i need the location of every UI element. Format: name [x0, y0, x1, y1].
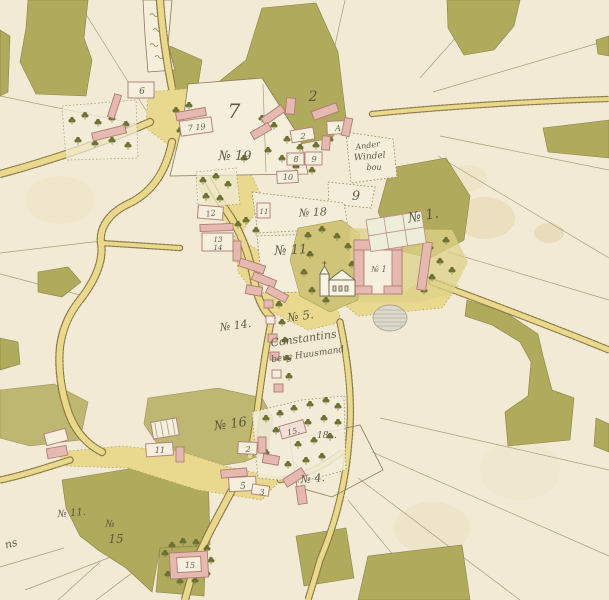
cottage	[272, 370, 281, 378]
wood-small-midleft	[38, 267, 81, 297]
label-plot-9: 9	[352, 189, 360, 204]
wood-right-z	[465, 300, 574, 446]
wood-right-mid	[543, 120, 609, 158]
label-building-6: 6	[139, 87, 145, 97]
label-building-a: A	[334, 124, 341, 133]
wood-left-lower	[0, 384, 88, 446]
tree-icon	[313, 142, 320, 150]
farm-building	[176, 447, 184, 462]
cottage	[274, 384, 283, 392]
wood-bottom-1	[358, 545, 470, 600]
tree-icon	[309, 167, 316, 175]
wood-left-sliver	[0, 30, 10, 96]
label-building-12: 12	[205, 208, 216, 218]
label-plot-15-no: №	[104, 519, 114, 530]
label-building-2-lower: 2	[244, 445, 250, 454]
farm-building	[200, 223, 233, 231]
label-plot-2: 2	[308, 89, 318, 105]
label-plot-18: № 18	[298, 205, 328, 219]
label-building-3-lower: 3	[259, 488, 264, 497]
label-script-ns: ns	[3, 536, 19, 552]
parcel-garden-12	[196, 168, 240, 208]
label-building-9: 9	[311, 155, 316, 164]
wood-topright-edge	[596, 36, 609, 56]
label-building-10: 10	[283, 173, 293, 182]
label-plot-18-dots: 18...	[317, 431, 337, 441]
cottage	[264, 300, 273, 308]
farm-building	[296, 485, 307, 504]
parcel-garden-west	[62, 100, 138, 160]
wood-topleft	[20, 0, 92, 96]
wood-right-sliver	[594, 418, 609, 452]
wood-left-edge-mid	[0, 338, 20, 370]
label-plot-7: 7	[228, 99, 241, 123]
label-building-15-bottom: 15	[185, 561, 195, 570]
label-plot-4: № 4.	[299, 471, 325, 486]
label-building-5-lower: 5	[240, 482, 246, 492]
farm-building	[285, 98, 295, 115]
tree-icon	[208, 557, 215, 565]
label-windel-3: bou	[366, 163, 381, 172]
label-plot-14: № 14.	[218, 317, 252, 334]
label-building-14: 14	[214, 244, 223, 252]
label-plot-19: № 19	[218, 149, 252, 164]
tree-icon	[279, 319, 286, 327]
wood-topright-1	[447, 0, 520, 55]
label-building-11-lower: 11	[155, 446, 165, 455]
label-building-7-19: 7 19	[187, 122, 206, 133]
label-building-8: 8	[293, 155, 298, 164]
label-building-2-top: 2	[299, 132, 305, 141]
label-building-13: 13	[214, 236, 223, 244]
label-plot-15-num: 15	[108, 532, 123, 546]
farm-building	[233, 241, 241, 261]
map-svg: 7 № 19 2 A 2 8 9 10 Ander Windel bou 9 №…	[0, 0, 609, 600]
historical-map-canvas: 7 № 19 2 A 2 8 9 10 Ander Windel bou 9 №…	[0, 0, 609, 600]
label-building-11-small: 11	[260, 208, 269, 216]
farm-building	[322, 136, 331, 151]
label-plot-11: № 11.	[273, 242, 312, 259]
cottage	[266, 316, 275, 324]
farm-building	[221, 468, 248, 478]
label-manor-plot-1: № 1	[370, 265, 386, 274]
tree-icon	[286, 373, 293, 381]
farm-building	[258, 437, 266, 453]
